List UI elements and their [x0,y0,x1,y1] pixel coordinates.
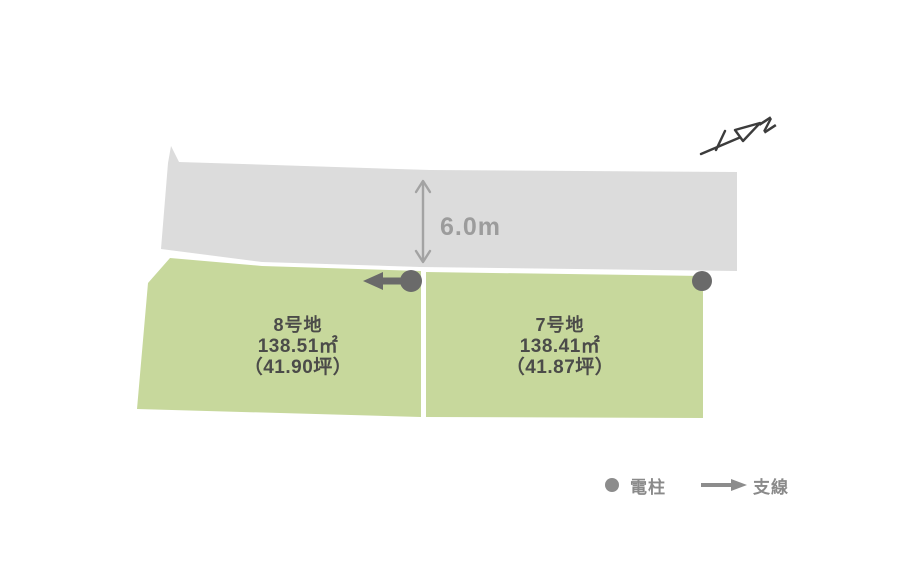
north-label: N [754,113,780,137]
road-width-label: 6.0m [440,213,501,242]
plot-7-area-tsubo: （41.87坪） [465,357,655,378]
utility-pole-right [692,271,712,291]
plot-8-area-tsubo: （41.90坪） [203,357,393,378]
plot-8-area-m2: 138.51㎡ [203,336,393,357]
plot-7-label: 7号地 138.41㎡ （41.87坪） [465,315,655,378]
utility-pole-legend-icon [605,478,619,492]
legend: 電柱 支線 [605,472,789,498]
plot-8-name: 8号地 [203,315,393,336]
utility-pole-left [400,270,422,292]
north-arrow: N [701,113,780,154]
legend-pole-label: 電柱 [630,473,666,498]
plot-7-name: 7号地 [465,315,655,336]
plot-8-label: 8号地 138.51㎡ （41.90坪） [203,315,393,378]
plot-7-area-m2: 138.41㎡ [465,336,655,357]
road-shape [161,146,737,271]
legend-guy-wire-label: 支線 [753,473,789,498]
guy-wire-legend-icon [700,478,748,492]
site-plan-canvas: N 6.0m 8号地 138.51㎡ （41.90坪） 7号地 138.41㎡ … [0,0,900,579]
